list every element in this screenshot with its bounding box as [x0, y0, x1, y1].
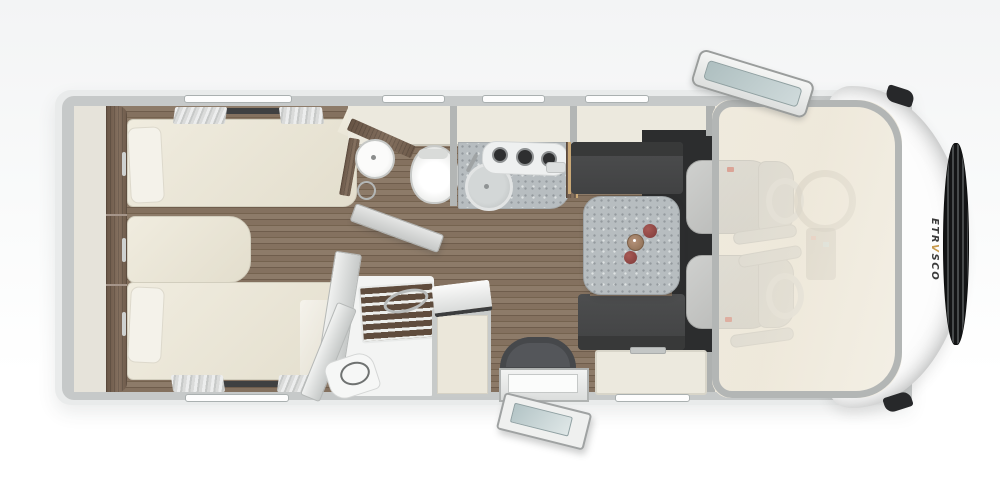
entry-door-window [510, 403, 573, 437]
tray-highlight [633, 239, 636, 242]
entry-step-tread [508, 374, 578, 393]
sideboard-handle [630, 347, 666, 354]
sideboard [595, 350, 707, 395]
kitchen-dinette-divider-wall [570, 106, 577, 144]
roof-window [382, 95, 445, 103]
window-curtain [279, 107, 324, 124]
fruit [643, 224, 657, 238]
wardrobe-handle [122, 152, 126, 176]
brand-logo-accent: V [929, 244, 940, 253]
wardrobe-handle [122, 312, 126, 336]
toilet-lid-hinge [418, 149, 448, 159]
wardrobe-handle [122, 238, 126, 262]
roof-window [585, 95, 649, 103]
roof-window [482, 95, 545, 103]
window-curtain [171, 375, 225, 392]
window-curtain [173, 107, 227, 124]
rear-shelf [74, 106, 109, 392]
floorplan-stage: ETRVSCO [0, 0, 1000, 500]
bed-extension-cushion [127, 216, 251, 283]
bathroom-kitchen-divider-wall [450, 106, 457, 206]
sink-drain [484, 184, 489, 189]
hob-burner [516, 148, 534, 166]
brand-logo-post: SCO [929, 254, 940, 282]
wardrobe-divider [106, 214, 127, 216]
washbasin-drain [371, 155, 376, 160]
brand-logo: ETRVSCO [927, 218, 941, 278]
hob-controls [546, 162, 566, 173]
cabinet-front [437, 315, 488, 394]
brand-logo-pre: ETR [929, 218, 940, 244]
fruit [624, 251, 637, 264]
pillow [127, 286, 165, 364]
side-window [615, 394, 690, 402]
side-window [185, 394, 289, 402]
roof-window [184, 95, 292, 103]
bench-backrest [571, 142, 683, 156]
pillow [127, 126, 165, 204]
table-tray [627, 234, 644, 251]
front-grille [943, 143, 969, 345]
windshield-frame [712, 100, 902, 398]
hob-burner [492, 147, 508, 163]
wardrobe-divider [106, 284, 127, 286]
